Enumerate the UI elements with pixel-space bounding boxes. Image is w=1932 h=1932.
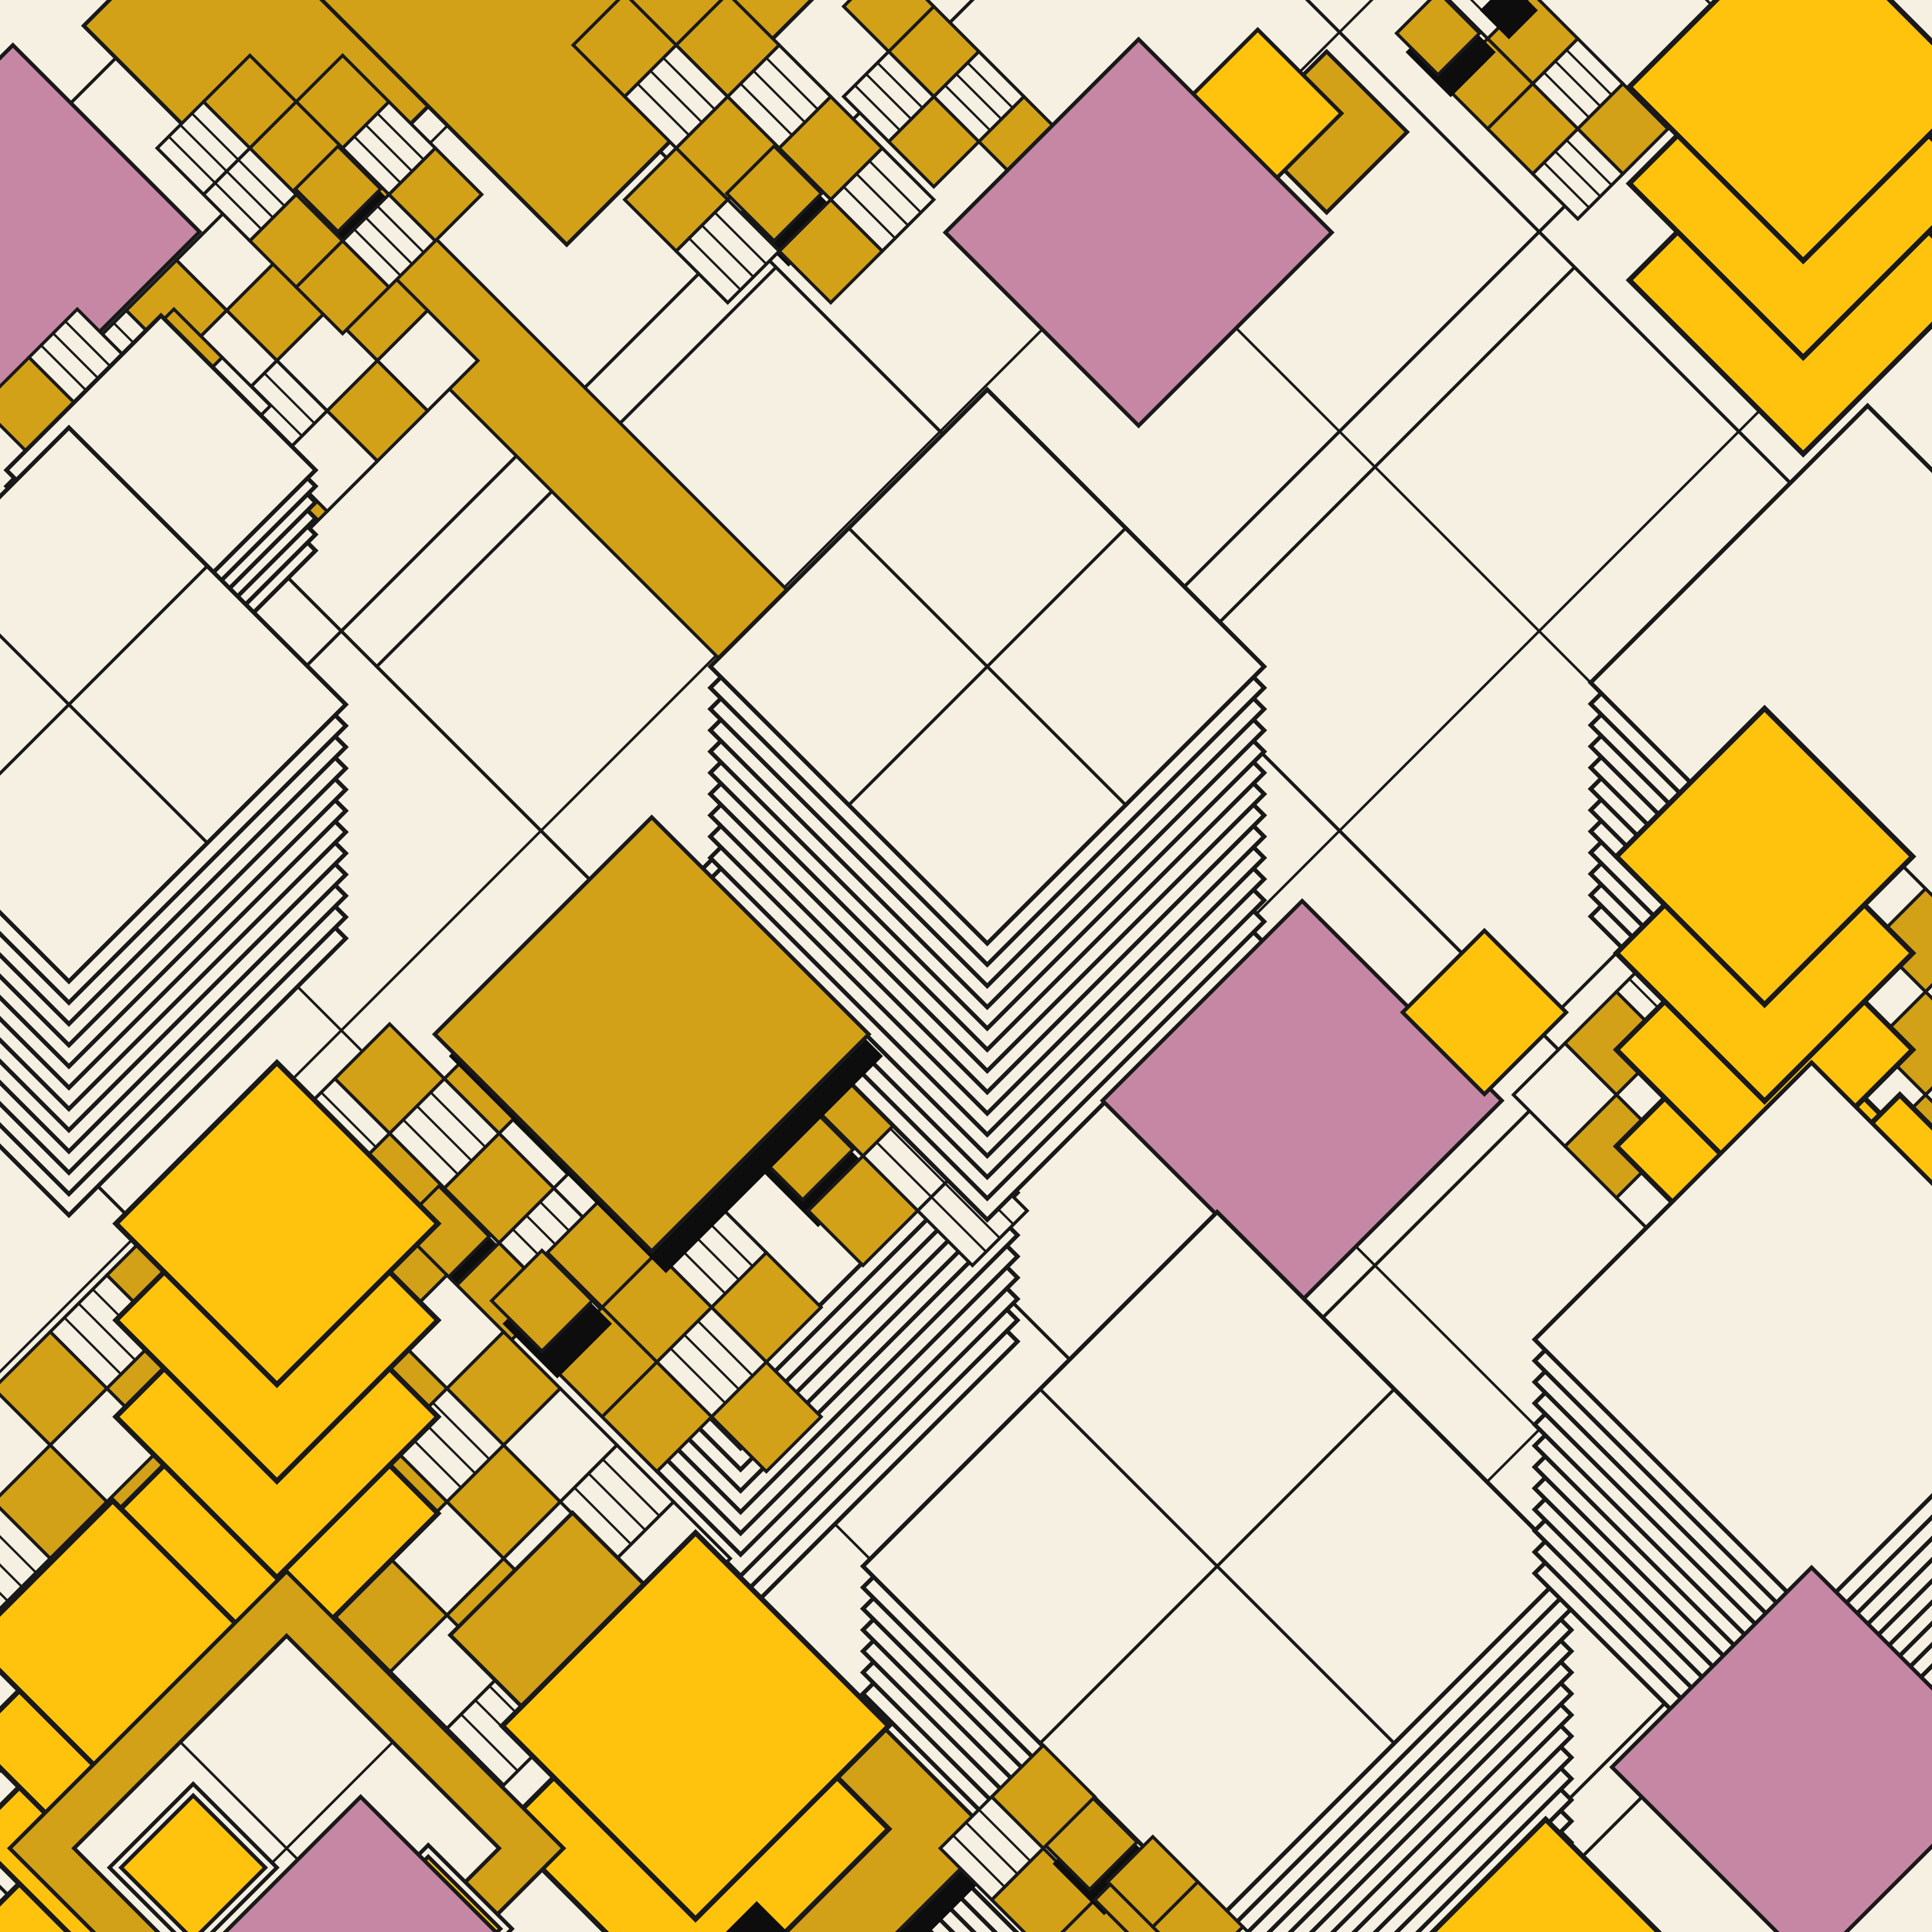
artwork-stage [0, 0, 1932, 1932]
abstract-pattern-canvas [0, 0, 1932, 1932]
